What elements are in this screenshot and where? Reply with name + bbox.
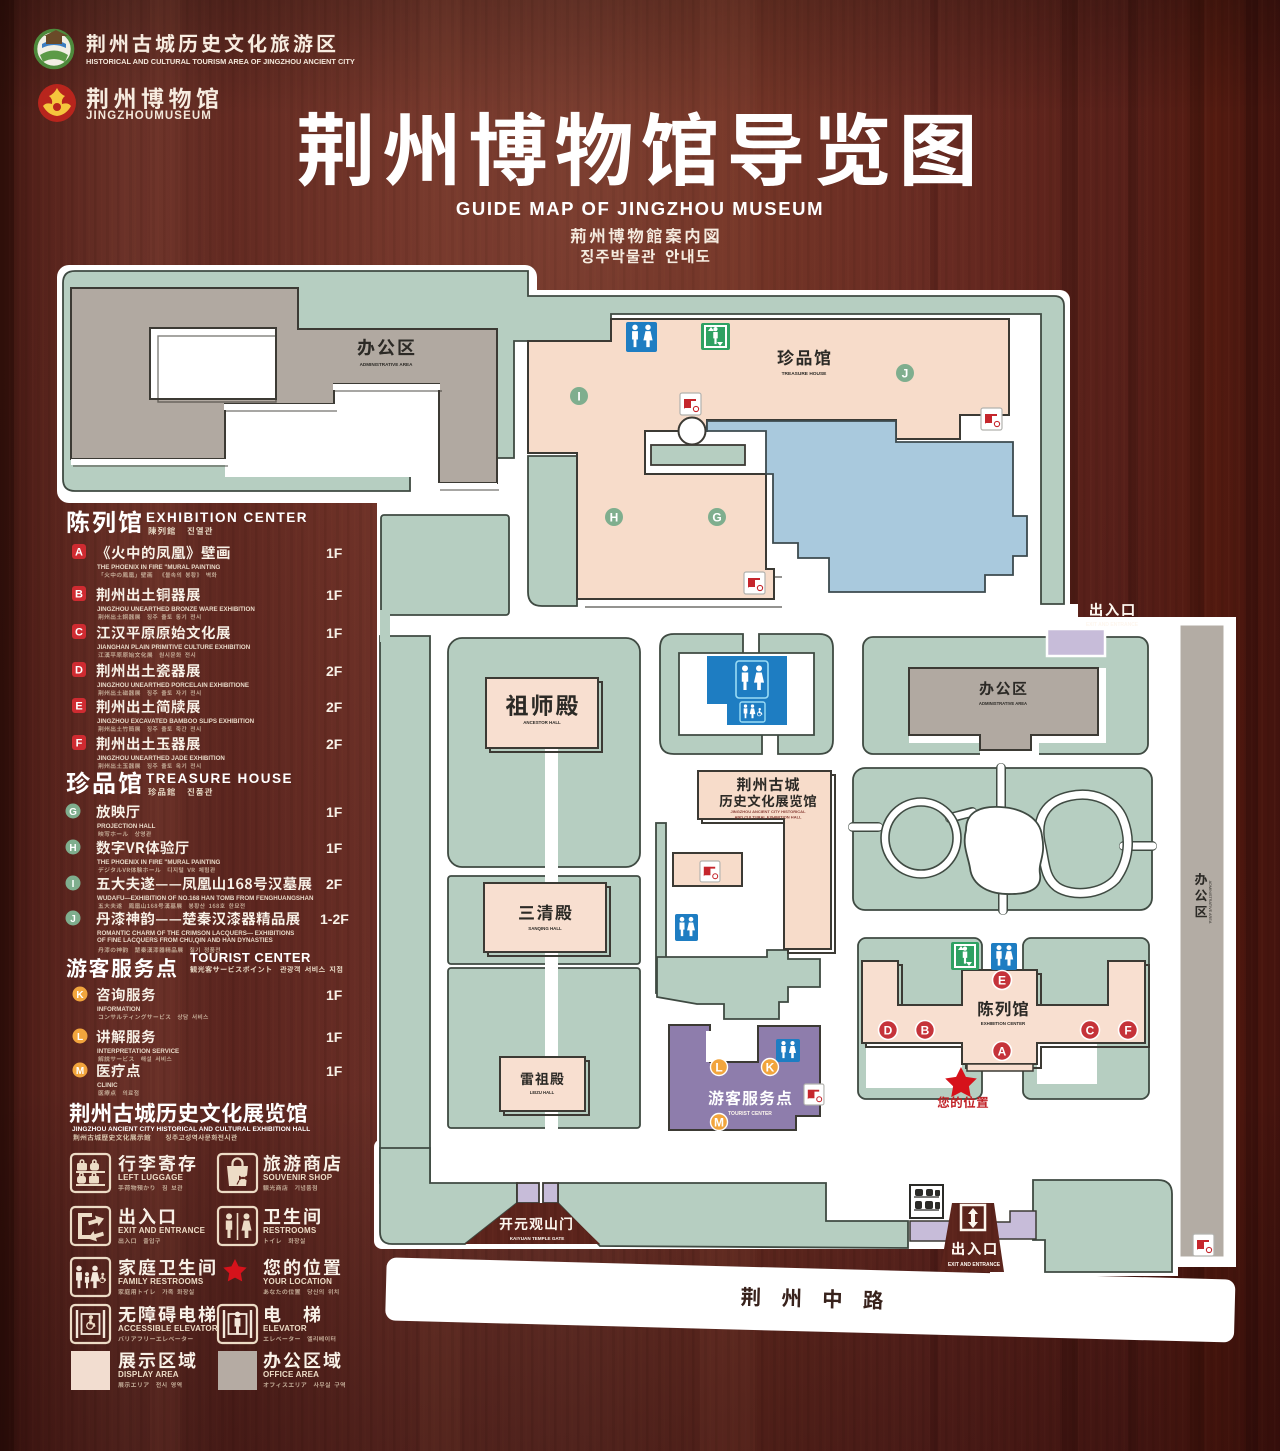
svg-text:1F: 1F <box>326 1029 343 1045</box>
svg-text:TREASURE HOUSE: TREASURE HOUSE <box>146 771 293 786</box>
svg-text:LEIZU HALL: LEIZU HALL <box>530 1090 555 1095</box>
svg-text:H: H <box>610 511 619 525</box>
svg-text:KAIYUAN TEMPLE GATE: KAIYUAN TEMPLE GATE <box>510 1236 565 1241</box>
svg-text:B: B <box>921 1024 930 1038</box>
svg-text:1F: 1F <box>326 1063 343 1079</box>
svg-text:1F: 1F <box>326 840 343 856</box>
svg-text:ADMINISTRATIVE AREA: ADMINISTRATIVE AREA <box>360 362 414 367</box>
svg-text:JINGZHOU UNEARTHED JADE EXHIBI: JINGZHOU UNEARTHED JADE EXHIBITION <box>97 755 225 762</box>
svg-text:JINGZHOU UNEARTHED PORCELAIN E: JINGZHOU UNEARTHED PORCELAIN EXHIBITIONE <box>97 682 249 689</box>
svg-text:JINGZHOU ANCIENT CITY HISTORIC: JINGZHOU ANCIENT CITY HISTORICAL <box>730 809 806 814</box>
svg-text:I: I <box>72 879 75 890</box>
svg-text:2F: 2F <box>326 876 343 892</box>
svg-text:1F: 1F <box>326 625 343 641</box>
svg-text:L: L <box>715 1061 722 1075</box>
svg-text:WUDAFU—EXHIBITION OF NO.168 HA: WUDAFU—EXHIBITION OF NO.168 HAN TOMB FRO… <box>97 895 314 902</box>
svg-text:EXHIBITION CENTER: EXHIBITION CENTER <box>146 510 308 525</box>
svg-text:DISPLAY AREA: DISPLAY AREA <box>118 1370 179 1379</box>
svg-text:JINGZHOU UNEARTHED BRONZE WARE: JINGZHOU UNEARTHED BRONZE WARE EXHIBITIO… <box>97 606 255 613</box>
svg-text:INFORMATION: INFORMATION <box>97 1006 141 1013</box>
svg-text:INTERPRETATION SERVICE: INTERPRETATION SERVICE <box>97 1048 179 1055</box>
svg-text:HISTORICAL AND CULTURAL TOURIS: HISTORICAL AND CULTURAL TOURISM AREA OF … <box>86 57 355 66</box>
svg-text:2F: 2F <box>326 736 343 752</box>
svg-text:G: G <box>712 511 721 525</box>
svg-text:EXIT AND ENTRANCE: EXIT AND ENTRANCE <box>1086 622 1139 628</box>
svg-text:B: B <box>75 589 83 601</box>
svg-text:1F: 1F <box>326 987 343 1003</box>
svg-text:ACCESSIBLE ELEVATOR: ACCESSIBLE ELEVATOR <box>118 1324 218 1333</box>
svg-text:TOURIST CENTER: TOURIST CENTER <box>728 1111 772 1117</box>
svg-text:TREASURE HOUSE: TREASURE HOUSE <box>782 371 828 377</box>
svg-text:E: E <box>998 974 1006 988</box>
svg-text:SANQING HALL: SANQING HALL <box>528 926 562 931</box>
svg-text:2F: 2F <box>326 699 343 715</box>
svg-text:F: F <box>76 738 83 750</box>
svg-text:JIANGHAN PLAIN PRIMITIVE CULTU: JIANGHAN PLAIN PRIMITIVE CULTURE EXHIBIT… <box>97 644 251 651</box>
svg-text:1F: 1F <box>326 804 343 820</box>
svg-text:K: K <box>766 1061 775 1075</box>
svg-text:E: E <box>75 701 82 713</box>
svg-text:ROMANTIC CHARM OF THE CRIMSON: ROMANTIC CHARM OF THE CRIMSON LACQUERS— … <box>97 930 294 937</box>
svg-text:ADMINISTRATIVE AREA: ADMINISTRATIVE AREA <box>979 701 1027 706</box>
svg-text:ANCESTOR HALL: ANCESTOR HALL <box>523 720 561 725</box>
svg-text:A: A <box>998 1045 1007 1059</box>
svg-text:M: M <box>714 1116 724 1130</box>
svg-text:C: C <box>1086 1024 1095 1038</box>
svg-text:RESTROOMS: RESTROOMS <box>263 1226 317 1235</box>
svg-text:OF FINE LACQUERS FROM CHU,QIN: OF FINE LACQUERS FROM CHU,QIN AND HAN DY… <box>97 937 273 944</box>
svg-text:EXHIBITION CENTER: EXHIBITION CENTER <box>981 1021 1026 1026</box>
svg-text:ADMINISTRATIVE AREA: ADMINISTRATIVE AREA <box>1208 881 1212 924</box>
svg-text:G: G <box>69 807 77 818</box>
svg-text:AND CULTURAL EXHIBITION HALL: AND CULTURAL EXHIBITION HALL <box>735 815 803 820</box>
svg-text:A: A <box>75 547 83 559</box>
svg-text:EXIT AND ENTRANCE: EXIT AND ENTRANCE <box>948 1262 1001 1268</box>
svg-text:1F: 1F <box>326 545 343 561</box>
svg-text:PROJECTION HALL: PROJECTION HALL <box>97 823 156 830</box>
svg-text:ELEVATOR: ELEVATOR <box>263 1324 307 1333</box>
svg-text:I: I <box>577 390 580 404</box>
svg-text:CLINIC: CLINIC <box>97 1082 118 1089</box>
svg-text:D: D <box>75 665 83 677</box>
svg-text:L: L <box>77 1032 83 1043</box>
svg-text:J: J <box>70 914 76 925</box>
svg-text:YOUR LOCATION: YOUR LOCATION <box>263 1277 332 1286</box>
svg-text:LEFT LUGGAGE: LEFT LUGGAGE <box>118 1173 184 1182</box>
svg-text:D: D <box>884 1024 893 1038</box>
svg-text:F: F <box>1124 1024 1131 1038</box>
svg-text:H: H <box>69 843 76 854</box>
svg-text:GUIDE MAP OF JINGZHOU MUSEUM: GUIDE MAP OF JINGZHOU MUSEUM <box>456 198 824 219</box>
svg-text:THE PHOENIX IN FIRE "MURAL PAI: THE PHOENIX IN FIRE "MURAL PAINTING <box>97 564 221 571</box>
svg-text:SOUVENIR SHOP: SOUVENIR SHOP <box>263 1173 333 1182</box>
svg-text:FAMILY RESTROOMS: FAMILY RESTROOMS <box>118 1277 204 1286</box>
svg-text:OFFICE AREA: OFFICE AREA <box>263 1370 319 1379</box>
svg-text:JINGZHOUMUSEUM: JINGZHOUMUSEUM <box>86 110 212 122</box>
svg-text:J: J <box>902 367 909 381</box>
svg-text:JINGZHOU EXCAVATED BAMBOO SLIP: JINGZHOU EXCAVATED BAMBOO SLIPS EXHIBITI… <box>97 718 255 725</box>
svg-text:1-2F: 1-2F <box>320 911 349 927</box>
svg-text:1F: 1F <box>326 587 343 603</box>
svg-text:M: M <box>76 1066 84 1077</box>
svg-text:EXIT AND ENTRANCE: EXIT AND ENTRANCE <box>118 1226 206 1235</box>
svg-text:JINGZHOU ANCIENT CITY HISTORIC: JINGZHOU ANCIENT CITY HISTORICAL AND CUL… <box>72 1126 310 1133</box>
svg-text:K: K <box>76 990 84 1001</box>
svg-text:C: C <box>75 627 83 639</box>
svg-text:THE PHOENIX IN FIRE "MURAL PAI: THE PHOENIX IN FIRE "MURAL PAINTING <box>97 859 221 866</box>
svg-text:2F: 2F <box>326 663 343 679</box>
